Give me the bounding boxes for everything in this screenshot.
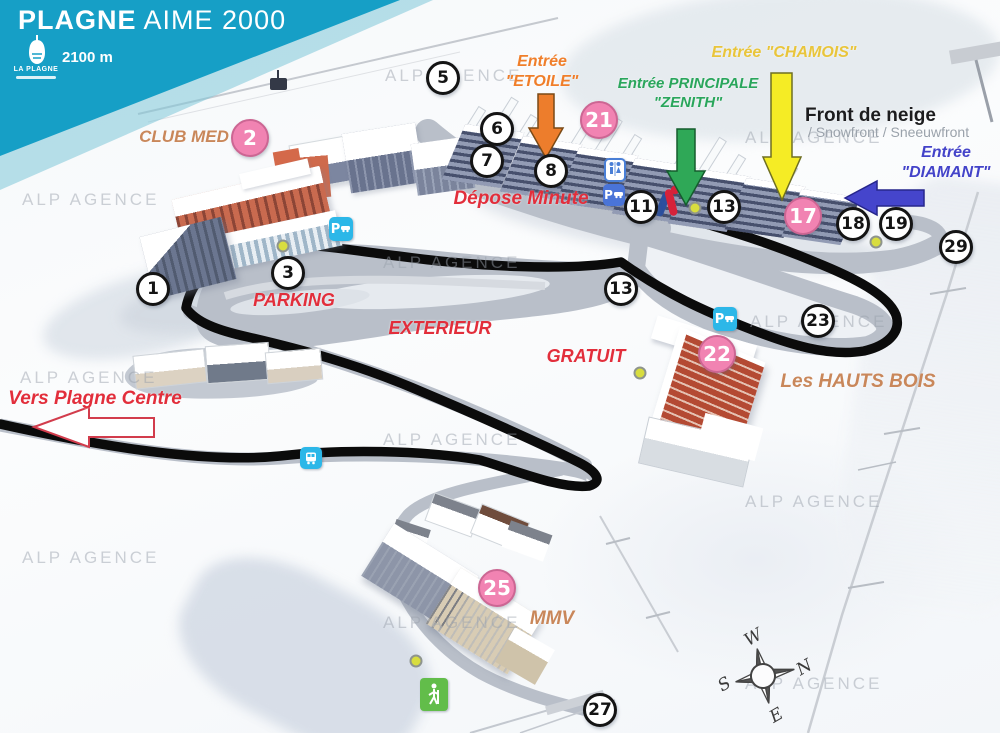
vers-plagne-centre-arrow: [34, 407, 154, 447]
watermark: ALP AGENCE: [22, 190, 159, 210]
map-marker: 27: [583, 693, 617, 727]
map-marker-pink: 2: [231, 119, 269, 157]
building: [132, 348, 207, 389]
gondola-icon: [270, 78, 287, 90]
esf-ski-school-icon: [652, 183, 684, 226]
svg-text:W: W: [741, 624, 767, 651]
mmv-building: [502, 520, 553, 561]
parking-icon: P: [603, 184, 625, 206]
banner-background: [0, 0, 400, 156]
map-marker: 23: [801, 304, 835, 338]
exterieur-label: EXTERIEUR: [388, 317, 491, 340]
brand-tagline: [16, 76, 56, 79]
watermark: ALP AGENCE: [22, 548, 159, 568]
map-marker: 13: [604, 272, 638, 306]
resort-map: ALP AGENCEALP AGENCEALP AGENCEALP AGENCE…: [0, 0, 1000, 733]
bus-stop-icon: [300, 447, 322, 469]
wc-icon: [604, 158, 626, 182]
resort-title: PLAGNE AIME 2000: [18, 5, 286, 36]
watermark: ALP AGENCE: [383, 253, 520, 273]
building: [205, 342, 271, 384]
gratuit-label: GRATUIT: [547, 345, 626, 368]
svg-text:E: E: [765, 704, 787, 728]
map-marker: 5: [426, 61, 460, 95]
altitude: 2100 m: [62, 49, 113, 66]
la-plagne-logo-icon: [24, 34, 50, 66]
vers-plagne-centre-label: Vers Plagne Centre: [8, 387, 182, 411]
watermark: ALP AGENCE: [385, 66, 522, 86]
parking-icon: P: [329, 217, 353, 241]
club-med-label: CLUB MED: [139, 126, 229, 148]
svg-text:N: N: [792, 655, 817, 681]
svg-text:S: S: [714, 673, 734, 696]
hiking-icon: [420, 678, 448, 711]
parking-icon: P: [713, 307, 737, 331]
compass-rose: W N S E: [700, 610, 830, 733]
poi-dot: [634, 367, 647, 380]
watermark: ALP AGENCE: [383, 430, 520, 450]
brand-text: LA PLAGNE: [8, 66, 64, 73]
building: [265, 348, 324, 385]
